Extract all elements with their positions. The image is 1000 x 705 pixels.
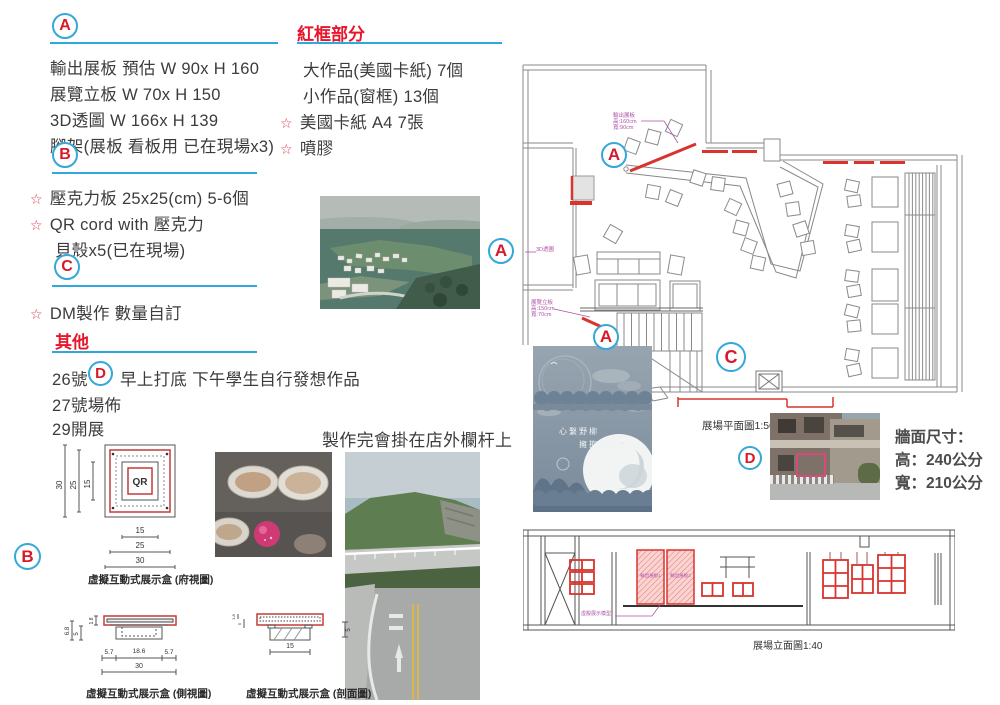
window — [778, 455, 794, 471]
qr-box-section-view: 1.8 5 5 15 — [230, 600, 355, 672]
plan-caption: 展場平面圖1:50 — [702, 418, 775, 433]
exhibition-poster: 心繫野柳 擁抱萬里 — [533, 346, 652, 512]
dim-5-7a: 5.7 — [104, 649, 113, 656]
redframe-2: 小作品(窗框) 13個 — [303, 83, 439, 107]
poster-title-line1: 心繫野柳 — [559, 426, 599, 436]
exhibition-plan-document: A 輸出展板 預估 W 90x H 160 展覽立板 W 70x H 150 3… — [0, 0, 1000, 705]
diagram-badge-b: B — [14, 543, 41, 570]
others-line3: 29開展 — [52, 416, 105, 440]
shell-bowls-photo — [215, 452, 332, 557]
badge-b: B — [52, 142, 78, 168]
elev-panel2-label: 輸出展板2 — [667, 573, 694, 579]
plan-badge-a-left: A — [488, 238, 514, 264]
dim-6-8: 6.8 — [65, 626, 71, 635]
qr-box-top-view: QR 30 25 15 15 25 30 — [55, 440, 185, 575]
dim-sec-5r: 5 — [346, 628, 352, 632]
redframe-3: ☆美國卡紙 A4 7張 — [280, 109, 424, 133]
dim-v-30: 30 — [55, 480, 64, 489]
badge-c-letter: C — [61, 258, 73, 276]
divider-a — [50, 42, 278, 44]
badge-a-letter: A — [59, 17, 71, 35]
others-title: 其他 — [55, 328, 89, 353]
qr-box-side-view: 6.8 5 1.8 5.7 18.6 5.7 30 — [60, 608, 200, 680]
road — [770, 483, 880, 500]
window — [834, 425, 864, 437]
balcony-band — [770, 440, 880, 448]
note-b-1: ☆壓克力板 25x25(cm) 5-6個 — [30, 185, 249, 209]
dim-1-8: 1.8 — [89, 617, 95, 624]
redframe-4: ☆噴膠 — [280, 135, 333, 159]
mid-caption: 製作完會掛在店外欄杆上 — [322, 426, 512, 451]
coastal-street-graphic — [345, 452, 480, 700]
dim-5-7b: 5.7 — [164, 649, 173, 656]
star-icon: ☆ — [280, 115, 293, 131]
note-a-3: 3D透圖 W 166x H 139 — [50, 107, 218, 131]
badge-d-letter: D — [95, 365, 106, 382]
badge-c: C — [54, 254, 80, 280]
note-a-1: 輸出展板 預估 W 90x H 160 — [50, 55, 259, 79]
note-c-1: ☆DM製作 數量自訂 — [30, 300, 182, 324]
star-icon: ☆ — [30, 191, 43, 207]
divider-b — [52, 172, 257, 174]
elevation-caption: 展場立面圖1:40 — [753, 637, 822, 652]
plan-badge-a2: A — [593, 324, 619, 350]
dim-v-25: 25 — [69, 480, 78, 489]
elev-panel1-label: 輸出展板1 — [637, 573, 664, 579]
star-icon: ☆ — [30, 217, 43, 233]
badge-b-letter: B — [59, 146, 71, 164]
others-line1-pre: 26號 — [52, 366, 88, 390]
storefront-photo — [770, 413, 880, 500]
elevation-drawing — [523, 527, 955, 637]
dim-v-15: 15 — [83, 479, 92, 488]
star-icon: ☆ — [30, 306, 43, 322]
shrub — [858, 463, 880, 485]
qr-side-view-caption: 虛擬互動式展示盒 (側視圖) — [86, 686, 211, 701]
others-line2: 27號場佈 — [52, 392, 121, 416]
aerial-3d-render-photo — [320, 196, 480, 309]
plan-badge-d: D — [738, 446, 762, 470]
divider-others — [52, 351, 257, 353]
badge-a: A — [52, 13, 78, 39]
note-b-2: ☆QR cord with 壓克力 — [30, 211, 204, 235]
wall-highlight-rect — [796, 453, 826, 477]
red-wall-marker — [570, 201, 592, 205]
poster-title-line2: 擁抱萬里 — [579, 439, 619, 449]
poster-graphic: 心繫野柳 擁抱萬里 — [533, 346, 652, 512]
qr-section-view-caption: 虛擬互動式展示盒 (剖面圖) — [246, 686, 371, 701]
qr-label: QR — [133, 477, 149, 488]
red-display-board-a — [630, 144, 696, 171]
dim-sec-5l: 5 — [237, 622, 242, 625]
note-a-4: 腳架(展板 看板用 已在現場x3) — [50, 133, 274, 157]
elev-note-label: 虛擬展示模型 — [581, 611, 611, 617]
dim-30: 30 — [135, 663, 143, 670]
qr-top-view-caption: 虛擬互動式展示盒 (府視圖) — [88, 572, 213, 587]
redframe-1: 大作品(美國卡紙) 7個 — [303, 57, 463, 81]
dim-sec-1-8: 1.8 — [231, 613, 236, 619]
star-icon: ☆ — [280, 141, 293, 157]
plan-badge-c: C — [716, 342, 746, 372]
aerial-render-graphic — [320, 196, 480, 309]
coastal-street-photo — [345, 452, 480, 700]
dim-5: 5 — [74, 632, 80, 636]
dim-h-15: 15 — [136, 526, 145, 535]
red-extent-bracket — [678, 397, 833, 407]
dim-h-30: 30 — [136, 556, 145, 565]
plan-badge-a1: A — [601, 142, 627, 168]
window — [778, 419, 796, 433]
plan-annotation-stand: 展覽立板 高:150cm 寬:70cm — [531, 300, 555, 318]
note-a-2: 展覽立板 W 70x H 150 — [50, 81, 221, 105]
dim-18-6: 18.6 — [133, 648, 146, 655]
dim-h-25: 25 — [136, 541, 145, 550]
divider-c — [52, 285, 257, 287]
divider-redframe — [297, 42, 502, 44]
shell-bowls-graphic — [215, 452, 332, 557]
dim-sec-15: 15 — [286, 643, 294, 650]
plan-annotation-3d: 3D透圖 — [536, 247, 554, 253]
wall-size-note: 牆面尺寸： 高：240公分 寬：210公分 — [895, 426, 983, 495]
badge-d: D — [88, 361, 113, 386]
plan-annotation-output-board: 輸出展板 高:160cm 寬:90cm — [613, 113, 637, 131]
others-line1-post: 早上打底 下午學生自行發想作品 — [120, 366, 360, 390]
